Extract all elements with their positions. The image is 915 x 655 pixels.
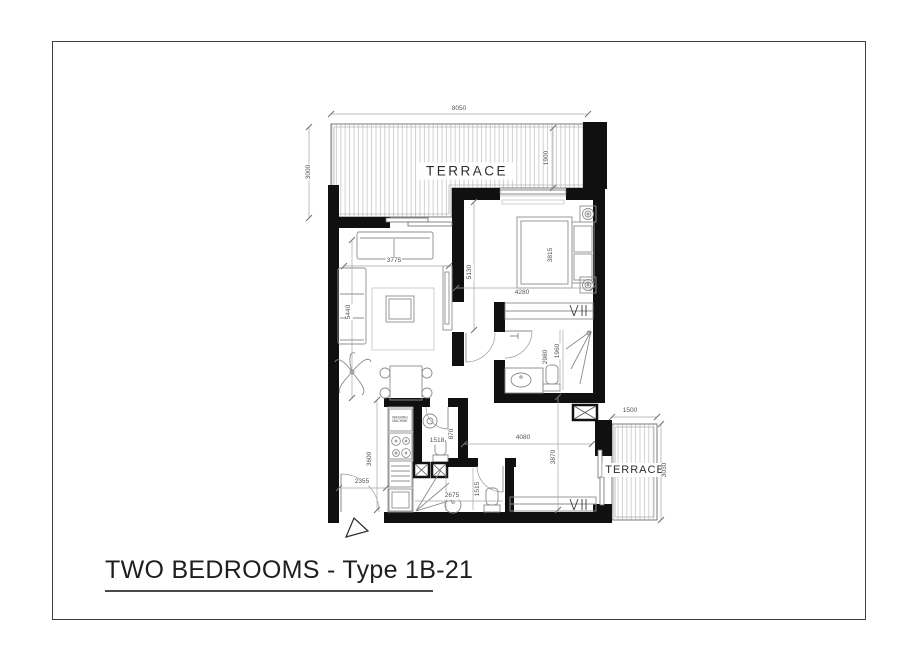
lamp-icon — [583, 209, 594, 220]
terrace-top-label: TERRACE — [419, 163, 515, 180]
toilet-bowl — [546, 365, 558, 384]
tap-symbol — [510, 333, 518, 339]
window-bedroom — [500, 190, 566, 204]
dim-bedroom-width: 4280 — [514, 290, 530, 297]
toilet-tank — [543, 384, 560, 391]
plant — [335, 353, 371, 395]
wc-fixtures — [423, 407, 448, 462]
dim-hall-width: 4080 — [515, 435, 531, 442]
dim-bedroom-depth: 5130 — [467, 264, 474, 280]
dim-bathroom2-depth: 1515 — [475, 481, 482, 497]
hanger-marks — [570, 305, 586, 316]
pedestal-sink — [445, 497, 461, 513]
dishwasher — [389, 461, 412, 487]
hall-door — [466, 333, 495, 362]
coffee-table — [386, 296, 414, 322]
toilet-tank — [484, 505, 500, 512]
wardrobe-corridor — [510, 497, 596, 511]
window-terrace2-slider — [598, 450, 604, 505]
dim-bed-length: 3815 — [548, 247, 555, 263]
bath1-door-swing — [505, 331, 532, 358]
dim-terrace-depth-left: 3000 — [306, 164, 313, 180]
tv-unit — [443, 266, 452, 330]
dim-terrace2-width: 1500 — [622, 408, 638, 415]
hanger-marks — [570, 499, 586, 510]
dim-hall-depth: 3870 — [551, 449, 558, 465]
floor-plan-page: TERRACE TERRACE WASHING MACHINE 8050 300… — [0, 0, 915, 655]
sofa — [357, 232, 433, 259]
dim-bathroom1-width: 2980 — [543, 349, 550, 365]
shower-symbol — [566, 331, 591, 384]
wardrobe-bedroom — [505, 303, 593, 319]
dim-bathroom1-depth: 1960 — [555, 343, 562, 359]
dining-table — [380, 366, 432, 400]
dim-kitchen-depth: 3600 — [367, 451, 374, 467]
round-basin — [423, 414, 437, 428]
entry-arrow-icon — [346, 518, 368, 537]
cooktop — [389, 433, 412, 459]
dim-wc-depth: 870 — [449, 428, 456, 441]
dim-living-depth: 5440 — [346, 304, 353, 320]
dim-terrace-depth-right: 1900 — [544, 150, 551, 166]
plan-title: TWO BEDROOMS - Type 1B-21 — [105, 556, 473, 585]
title-underline — [105, 590, 433, 592]
sink — [511, 373, 531, 387]
window-living-slider — [386, 218, 452, 226]
dim-terrace-width: 8050 — [451, 106, 467, 113]
washing-machine-label: WASHING MACHINE — [392, 417, 408, 424]
dim-wc-width: 1518 — [429, 438, 445, 445]
dim-entry-width: 2355 — [354, 479, 370, 486]
toilet-tank — [433, 455, 448, 462]
dim-bathroom2-width: 2675 — [444, 493, 460, 500]
terrace-right-label: TERRACE — [602, 463, 668, 477]
toilet-bowl — [486, 488, 498, 505]
dim-terrace2-depth: 3030 — [662, 462, 669, 478]
dim-living-width: 3775 — [386, 258, 402, 265]
